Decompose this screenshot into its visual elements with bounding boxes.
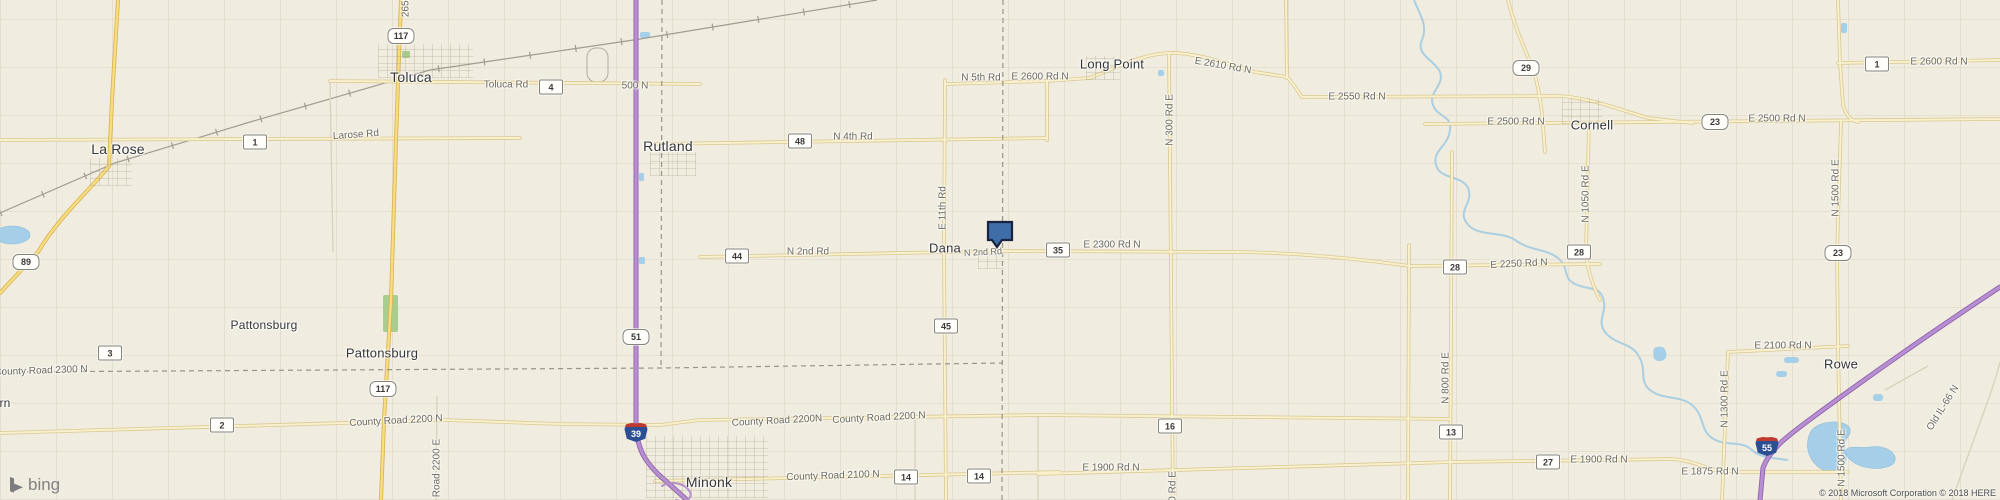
- minor-roads: [330, 80, 2000, 500]
- state-routes: [0, 0, 401, 500]
- bing-logo-icon: [8, 476, 24, 494]
- county-boundary-lines: [0, 0, 1003, 500]
- interstate-highways: [636, 0, 2000, 500]
- oval-track-outline: [587, 48, 608, 82]
- railroad-line: [0, 0, 877, 213]
- bing-logo[interactable]: bing: [8, 475, 60, 495]
- map-canvas[interactable]: TolucaLa RoseRutlandLong PointCornellDan…: [0, 0, 2000, 500]
- river-and-lakes: [0, 0, 1895, 472]
- bing-logo-text: bing: [28, 475, 60, 495]
- county-roads-fill: [0, 0, 2000, 500]
- map-attribution: © 2018 Microsoft Corporation © 2018 HERE: [1819, 488, 1996, 498]
- map-vector-layer: [0, 0, 2000, 500]
